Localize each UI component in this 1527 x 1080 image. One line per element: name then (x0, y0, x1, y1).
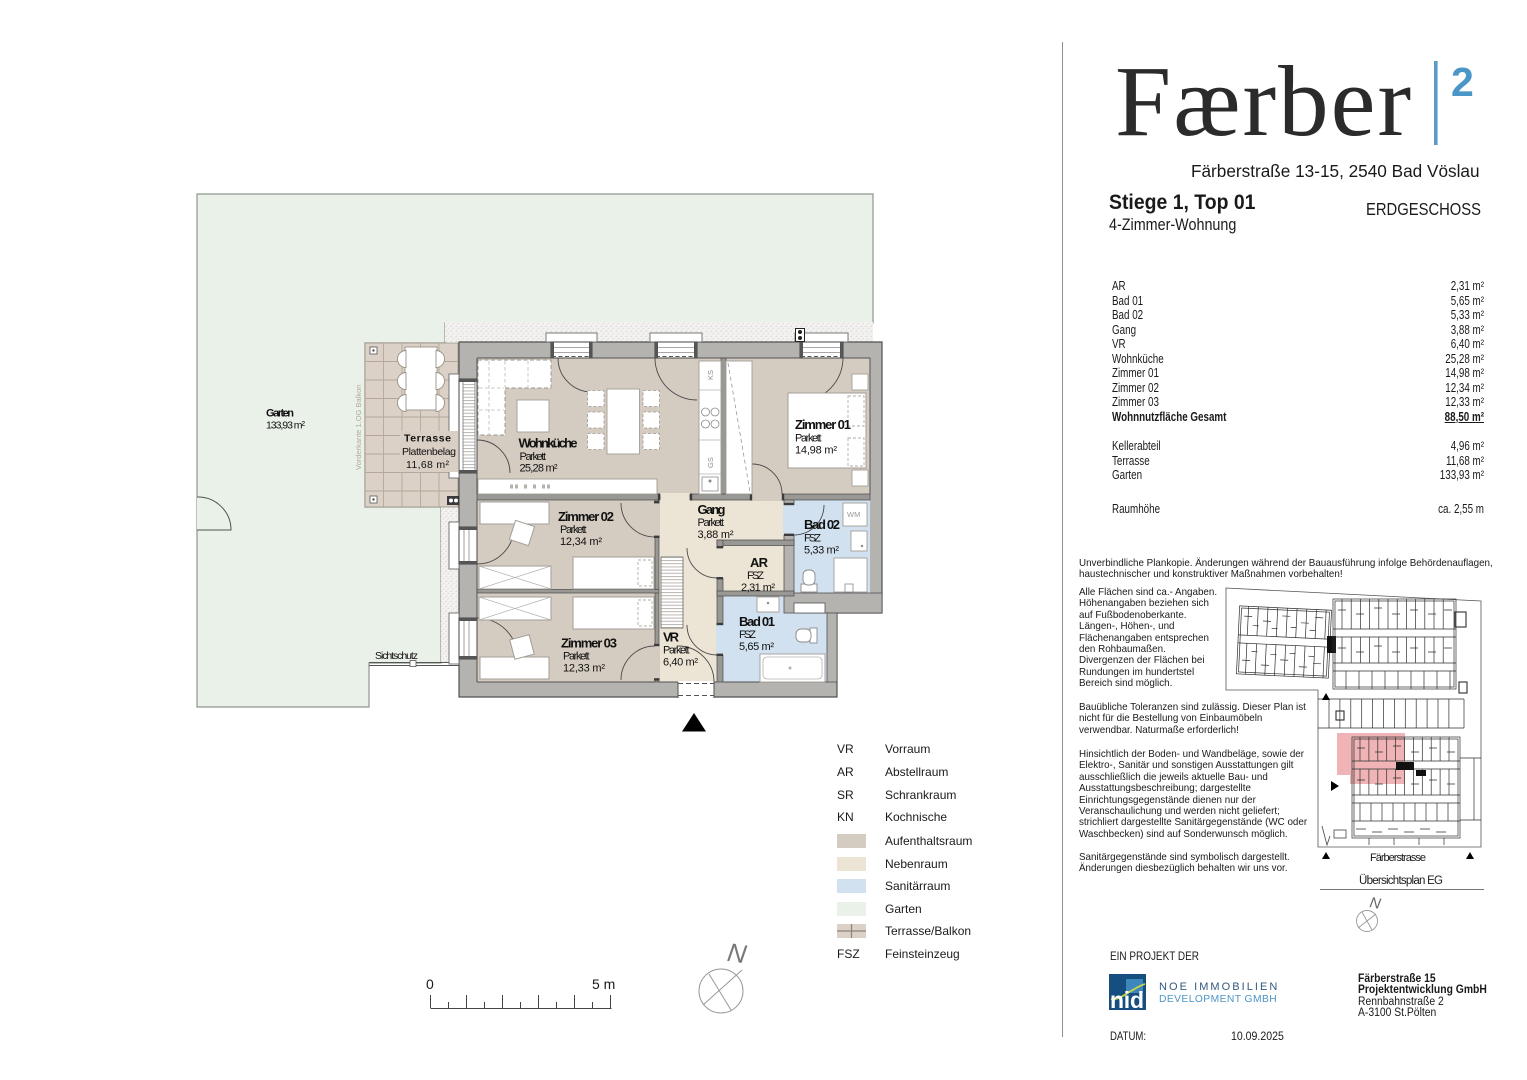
svg-text:Parkett: Parkett (563, 651, 590, 663)
svg-text:Wohnküche: Wohnküche (519, 436, 578, 451)
svg-text:Feinsteinzeug: Feinsteinzeug (885, 947, 960, 961)
svg-text:133,93 m²: 133,93 m² (266, 420, 306, 432)
svg-text:KN: KN (837, 810, 854, 824)
svg-text:FSZ: FSZ (747, 570, 764, 582)
svg-text:Abstellraum: Abstellraum (885, 765, 948, 779)
svg-text:FSZ: FSZ (804, 533, 821, 545)
svg-text:WM: WM (847, 510, 860, 519)
svg-text:Aufenthaltsraum: Aufenthaltsraum (885, 834, 972, 848)
svg-text:Kochnische: Kochnische (885, 810, 947, 824)
svg-text:Terrasse/Balkon: Terrasse/Balkon (885, 924, 971, 938)
svg-text:0: 0 (426, 976, 434, 992)
svg-text:14,98 m²: 14,98 m² (795, 445, 837, 457)
svg-text:Färberstrasse: Färberstrasse (1370, 852, 1426, 864)
svg-text:5 m: 5 m (592, 976, 615, 992)
svg-text:Nebenraum: Nebenraum (885, 857, 948, 871)
svg-text:Zimmer 03: Zimmer 03 (561, 636, 617, 651)
svg-text:nid: nid (1110, 987, 1144, 1013)
svg-text:5,33 m²: 5,33 m² (804, 545, 839, 557)
svg-text:Zimmer 01: Zimmer 01 (795, 417, 851, 432)
svg-text:5,65 m²: 5,65 m² (739, 641, 774, 653)
svg-text:12,34 m²: 12,34 m² (560, 536, 602, 548)
svg-text:N: N (726, 937, 749, 969)
svg-text:Vorraum: Vorraum (885, 742, 930, 756)
svg-text:Bad 02: Bad 02 (804, 517, 840, 532)
svg-text:Vorderkante 1.OG Balkon: Vorderkante 1.OG Balkon (354, 385, 363, 470)
svg-text:N: N (1368, 894, 1382, 913)
svg-text:Garten: Garten (885, 902, 922, 916)
svg-text:25,28 m²: 25,28 m² (520, 463, 558, 475)
svg-text:6,40 m²: 6,40 m² (663, 657, 698, 669)
svg-text:VR: VR (663, 630, 680, 645)
svg-text:AR: AR (750, 555, 769, 570)
svg-text:Sanitärraum: Sanitärraum (885, 879, 950, 893)
svg-text:Gang: Gang (698, 502, 726, 517)
svg-text:Parkett: Parkett (560, 524, 587, 536)
svg-text:Parkett: Parkett (663, 645, 690, 657)
svg-text:Zimmer 02: Zimmer 02 (558, 509, 614, 524)
svg-text:Garten: Garten (266, 408, 294, 420)
svg-text:KS: KS (706, 370, 715, 380)
svg-text:3,88 m²: 3,88 m² (698, 529, 734, 541)
svg-text:Parkett: Parkett (698, 517, 725, 529)
svg-text:Übersichtsplan EG: Übersichtsplan EG (1359, 875, 1443, 887)
svg-text:Terrasse: Terrasse (404, 433, 451, 445)
svg-text:11,68 m²: 11,68 m² (406, 459, 450, 471)
svg-text:Plattenbelag: Plattenbelag (402, 446, 456, 458)
svg-text:Parkett: Parkett (795, 433, 822, 445)
svg-text:VR: VR (837, 742, 854, 756)
svg-text:Parkett: Parkett (520, 451, 547, 463)
svg-text:12,33 m²: 12,33 m² (563, 663, 605, 675)
svg-text:GS: GS (706, 457, 715, 468)
svg-text:AR: AR (837, 765, 854, 779)
svg-text:Schrankraum: Schrankraum (885, 788, 956, 802)
svg-text:Sichtschutz: Sichtschutz (375, 650, 418, 662)
svg-text:2,31 m²: 2,31 m² (741, 582, 775, 594)
svg-text:FSZ: FSZ (837, 947, 860, 961)
svg-text:Færber: Færber (1115, 45, 1413, 157)
svg-text:SR: SR (837, 788, 854, 802)
svg-text:FSZ: FSZ (739, 629, 756, 641)
svg-text:Bad 01: Bad 01 (739, 614, 775, 629)
svg-text:2: 2 (1451, 59, 1474, 105)
